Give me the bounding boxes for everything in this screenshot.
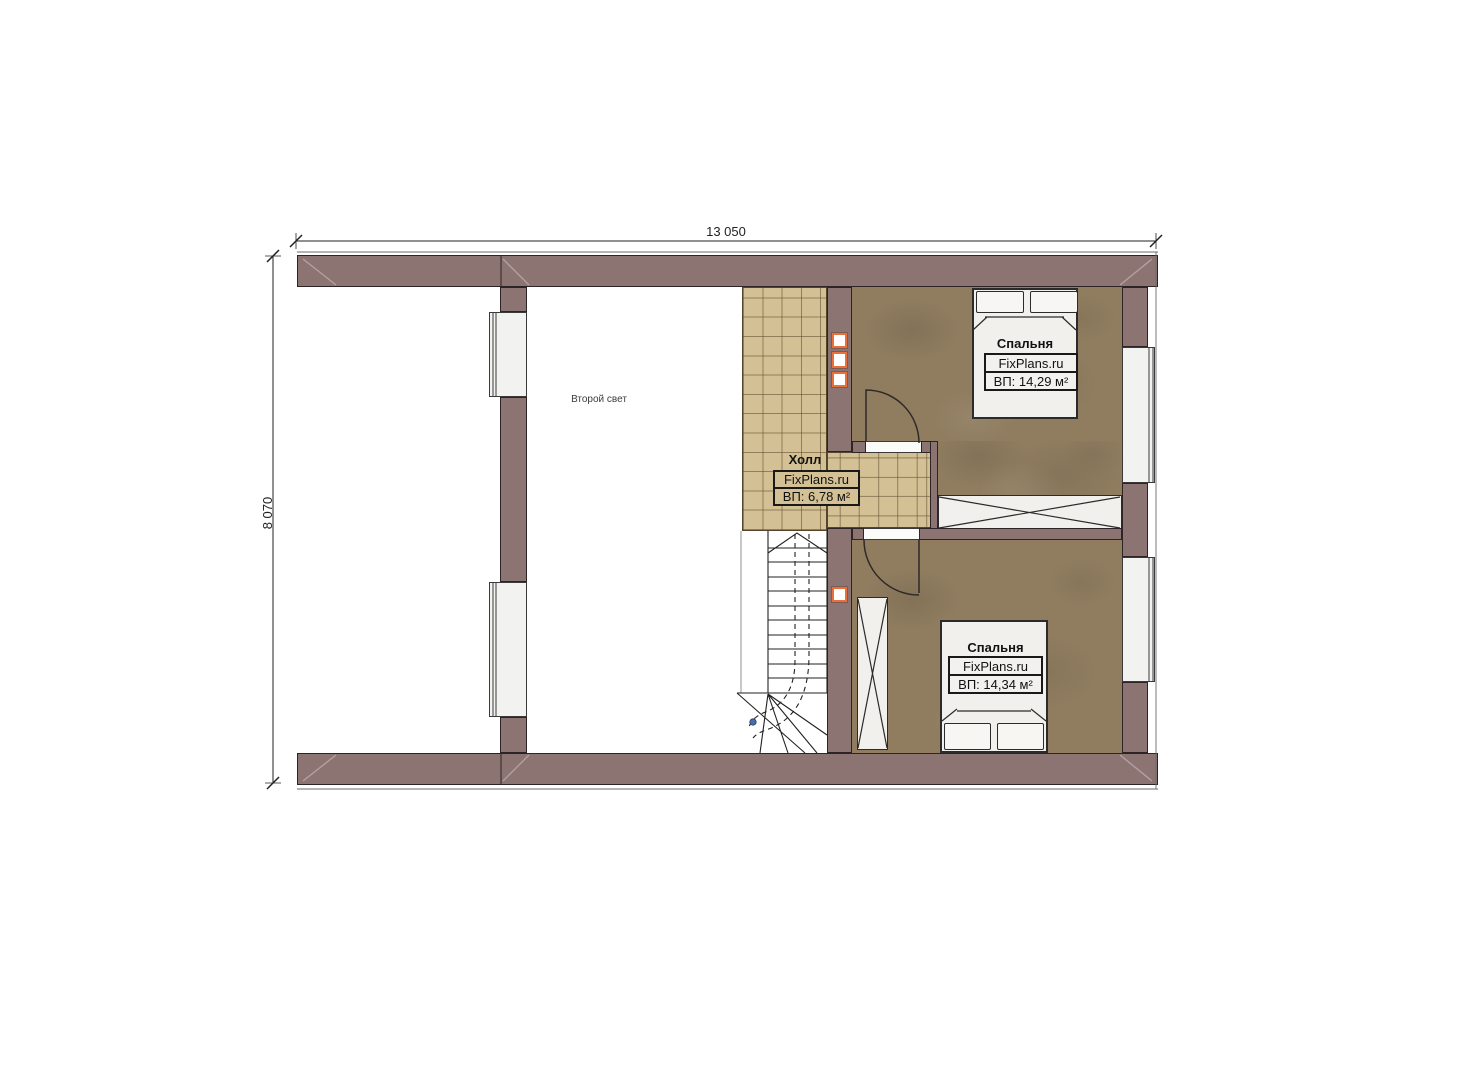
bedroom-top-brand-box: FixPlans.ru [984, 353, 1078, 373]
wall-stairs-east-lower [827, 528, 852, 753]
pillow-icon [944, 723, 991, 750]
pillow-icon [1030, 291, 1078, 313]
bedroom-bottom-brand-box: FixPlans.ru [948, 656, 1043, 676]
wardrobe-icon [938, 495, 1122, 530]
bedroom-top-name-label: Спальня [978, 337, 1072, 351]
wall-divider-jamb [852, 528, 864, 540]
wall-left-pier [500, 397, 527, 582]
hall-area-box: ВП: 6,78 м² [773, 487, 860, 506]
wall-corridor-stub [930, 441, 938, 540]
bedroom-top-floor-lower [938, 441, 1122, 497]
dimension-width-label: 13 050 [656, 224, 796, 239]
open-bay-floor [297, 287, 500, 753]
wall-vent-marker [832, 587, 847, 602]
wall-vent-marker [832, 352, 847, 368]
wall-left-pier [500, 717, 527, 753]
wall-vent-marker [832, 372, 847, 387]
hall-name-label: Холл [770, 453, 840, 467]
bedroom-bottom-name-label: Спальня [948, 641, 1043, 655]
wall-bottom [297, 753, 1158, 785]
bedroom-top-area-box: ВП: 14,29 м² [984, 371, 1078, 391]
pillow-icon [976, 291, 1024, 313]
wardrobe-icon [857, 597, 888, 750]
window-left-top [489, 312, 527, 397]
wall-divider [919, 528, 1122, 540]
door-opening-bedroom-bottom [864, 528, 919, 540]
wall-right-pier [1122, 287, 1148, 347]
floor-plan-canvas: 13 050 8 070 Второй свет Холл FixPlans.r… [0, 0, 1473, 1080]
wall-left-pier [500, 287, 527, 312]
wall-right-pier [1122, 483, 1148, 557]
wall-corridor-north-jamb [852, 441, 866, 453]
wall-top [297, 255, 1158, 287]
second-light-label: Второй свет [549, 394, 649, 405]
bedroom-bottom-area-box: ВП: 14,34 м² [948, 674, 1043, 694]
wall-right-pier [1122, 682, 1148, 753]
wall-vent-marker [832, 333, 847, 348]
dimension-height-label: 8 070 [260, 485, 276, 541]
window-left-bottom [489, 582, 527, 717]
wall-hall-east-upper [827, 287, 852, 452]
window-right-bottom [1122, 557, 1155, 682]
door-opening-bedroom-top [866, 441, 921, 453]
window-right-top [1122, 347, 1155, 483]
pillow-icon [997, 723, 1044, 750]
